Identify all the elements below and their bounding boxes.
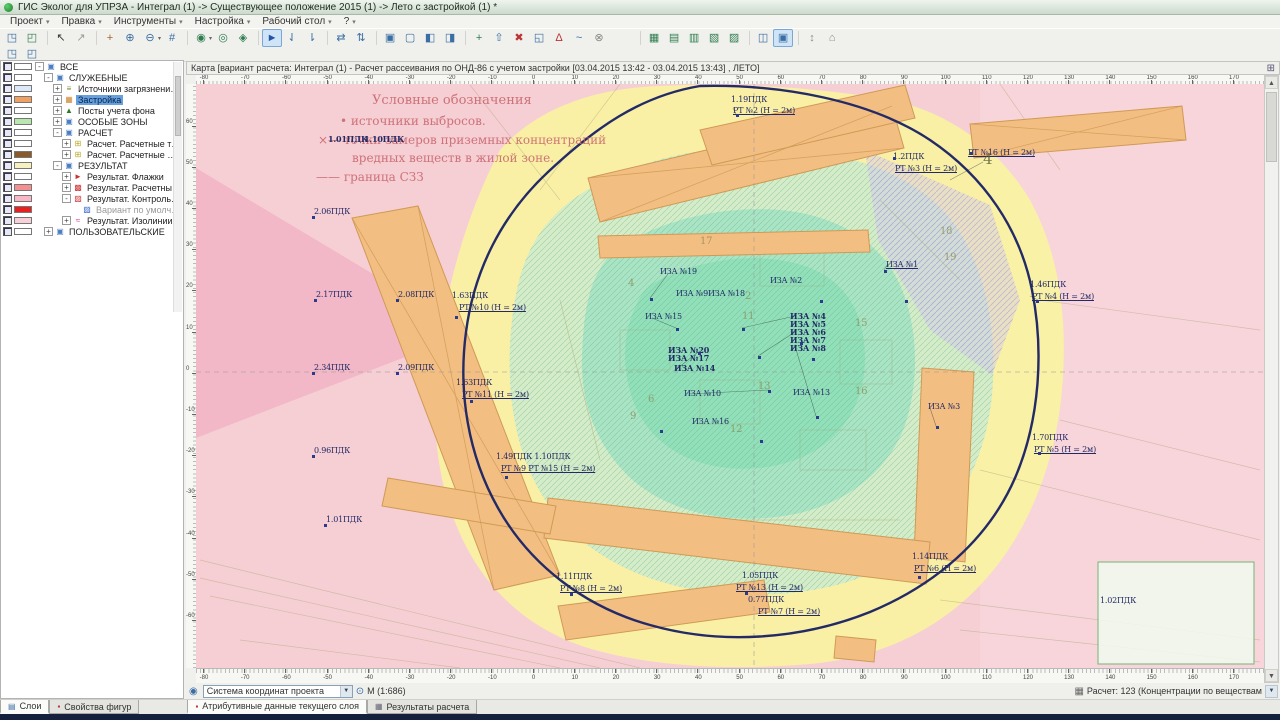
ruler-tick [1027,669,1028,673]
ruler-number: 140 [1103,675,1117,681]
toolbar-button-0-11-1[interactable]: ⌂ [822,29,842,47]
layer-visibility-icon[interactable] [3,117,12,126]
source-marker [455,316,458,319]
toolbar-separator [327,31,328,45]
menu-item-2[interactable]: Инструменты [108,16,189,27]
tab-calc-results-label: Результаты расчета [387,702,470,712]
expand-icon[interactable]: + [53,95,62,104]
toolbar-button-0-7-1[interactable]: ⇧ [489,29,509,47]
source-marker [660,430,663,433]
toolbar-button-0-1-0[interactable]: ↖ [51,29,71,47]
layer-visibility-icon[interactable] [3,205,12,214]
map-canvas[interactable]: Условные обозначения• источники выбросов… [196,84,1264,668]
ruler-tick [1151,669,1152,673]
toolbar-button-0-4-0[interactable]: ► [262,29,282,47]
pts-icon: ⊞ [73,139,83,149]
ruler-number: -50 [321,675,335,681]
source-marker [936,426,939,429]
res3-icon: ▨ [82,205,92,215]
tab-shape-properties-label: Свойства фигур [64,702,131,712]
ruler-number: 160 [1186,75,1200,81]
tree-row-label: ОСОБЫЕ ЗОНЫ [76,117,149,127]
layer-swatch [14,206,32,213]
layer-tree: -▣ВСЕ-▣СЛУЖЕБНЫЕ+≡Источники загрязнения … [1,61,183,237]
ruler-tick [574,669,575,673]
expand-icon[interactable]: + [62,216,71,225]
layers-scrollbar[interactable] [173,62,182,312]
layer-swatch [14,184,32,191]
zone-green-mid [582,209,915,519]
map-label: РТ №9 РТ №15 (Н = 2м) [501,465,595,473]
ruler-number: 50 [733,675,747,681]
tree-row-10[interactable]: +►Результат. Флажки [1,171,183,182]
collapse-icon[interactable]: - [44,73,53,82]
tree-row-label: Результат. Расчетные т... [85,183,183,193]
source-marker [812,358,815,361]
iso-icon: ≈ [73,216,83,226]
layer-visibility-icon[interactable] [3,106,12,115]
window-title: ГИС Эколог для УПРЗА - Интеграл (1) -> С… [18,2,497,13]
folder-icon: ▣ [64,161,74,171]
map-label: 1.49ПДК 1.10ПДК [496,453,571,461]
collapse-icon[interactable] [71,205,80,214]
expand-icon[interactable]: + [62,172,71,181]
toolbar-button-0-6-2[interactable]: ◧ [420,29,440,47]
map-label: ИЗА №2 [770,277,802,285]
tree-row-8[interactable]: +⊞Расчет. Расчетные площ... [1,149,183,160]
ruler-number: -80 [197,675,211,681]
collapse-icon[interactable]: - [53,128,62,137]
tree-row-6[interactable]: -▣РАСЧЕТ [1,127,183,138]
ruler-number: 130 [1062,675,1076,681]
ruler-tick [780,669,781,673]
layer-visibility-icon[interactable] [3,183,12,192]
ruler-tick [1233,669,1234,673]
layer-visibility-icon[interactable] [3,161,12,170]
ruler-number: -60 [279,675,293,681]
legend-line: —— граница СЗЗ [316,170,424,184]
pts-icon: ⊞ [73,150,83,160]
source-marker [820,300,823,303]
ruler-bottom: -80-70-60-50-40-30-20-100102030405060708… [196,668,1264,684]
ruler-number: 30 [650,675,664,681]
tab-shape-properties[interactable]: ▪ Свойства фигур [49,700,139,714]
toolbar-button-0-6-1[interactable]: ▢ [400,29,420,47]
source-marker [1036,300,1039,303]
map-label: РТ №6 (Н = 2м) [914,565,976,573]
toolbar-button-0-7-0[interactable]: + [469,29,489,47]
source-marker [905,300,908,303]
map-label: 1.01ПДК [326,516,362,524]
app-icon [4,3,13,12]
layers-scrollbar-thumb[interactable] [175,76,181,136]
map-label: 2.06ПДК [314,208,350,216]
ruler-number: 80 [856,675,870,681]
toolbar-dropdown-icon[interactable]: ▾ [158,35,161,42]
toolbar-button-0-7-5[interactable]: ~ [569,29,589,47]
map-label: 16 [855,388,867,396]
source-marker [970,152,973,155]
tree-row-label: Расчет. Расчетные точки [85,139,183,149]
toolbar-group-2: +⊕⊖▾# [100,29,182,47]
map-label: ИЗА №1 [886,261,918,269]
ruler-tick [1192,669,1193,673]
map-label: ИЗА №5 [790,320,826,328]
expand-icon[interactable]: + [53,84,62,93]
ruler-number: -60 [186,613,195,619]
expand-icon[interactable]: + [44,227,53,236]
layer-visibility-icon[interactable] [3,227,12,236]
layer-visibility-icon[interactable] [3,194,12,203]
coord-system-select[interactable]: Система координат проекта ▼ [203,685,353,698]
toolbar-button-0-11-0[interactable]: ↕ [802,29,822,47]
zone-lavender [865,150,1020,375]
toolbar-button-0-2-3[interactable]: # [162,29,182,47]
toolbar-button-0-3-2[interactable]: ◈ [233,29,253,47]
tree-row-9[interactable]: -▣РЕЗУЛЬТАТ [1,160,183,171]
map-label: ИЗА №17 [668,354,709,362]
layer-visibility-icon[interactable] [3,84,12,93]
map-label: 6 [648,396,654,404]
map-label: 1.19ПДК [731,96,767,104]
toolbar-button-0-7-6[interactable]: ⊗ [589,29,609,47]
ruler-number: 110 [980,75,994,81]
toolbar-button-0-5-1[interactable]: ⇅ [351,29,371,47]
tabs-spacer [139,700,187,714]
ruler-number: -10 [485,675,499,681]
legend-line: вредных веществ в жилой зоне. [352,151,554,165]
szz-boundary [463,86,1038,637]
source-marker [396,372,399,375]
map-label: ИЗА №13 [793,389,830,397]
toolbar-separator [258,31,259,45]
toolbar-button-0-2-0[interactable]: + [100,29,120,47]
collapse-icon[interactable]: - [62,194,71,203]
source-marker [816,416,819,419]
folder-icon: ▣ [55,227,65,237]
menu-item-1[interactable]: Правка [55,16,107,27]
toolbar-button-0-9-3[interactable]: ▧ [704,29,724,47]
toolbar-button-0-9-2[interactable]: ▥ [684,29,704,47]
toolbar-button-0-10-1[interactable]: ▣ [773,29,793,47]
expand-icon[interactable]: + [62,139,71,148]
tree-row-0[interactable]: -▣ВСЕ [1,61,183,72]
tree-row-label: Расчет. Расчетные площ... [85,150,183,160]
toolbar-main: ◳◰↖↗+⊕⊖▾#◉▾◎◈►⇃⇂⇄⇅▣▢◧◨+⇧✖◱Δ~⊗▦▤▥▧▨◫▣↕⌂ [0,28,1280,47]
ruler-number: 50 [733,75,747,81]
map-scale: М (1:686) [367,686,406,696]
toolbar-group-4: ►⇃⇂ [262,29,322,47]
collapse-icon[interactable]: - [53,161,62,170]
menu-item-5[interactable]: ? [338,16,362,27]
ruler-number: 60 [774,675,788,681]
toolbar-button-0-2-2[interactable]: ⊖ [140,29,160,47]
tab-calc-results[interactable]: ▦ Результаты расчета [367,700,477,714]
source-marker [312,216,315,219]
tree-row-4[interactable]: +▲Посты учета фона [1,105,183,116]
zone-pink-wedge [196,168,470,438]
tree-row-7[interactable]: +⊞Расчет. Расчетные точки [1,138,183,149]
source-marker [760,440,763,443]
tree-row-label: Застройка [76,95,123,105]
map-label: ИЗА №8 [790,344,826,352]
ruler-number: 10 [568,75,582,81]
ruler-number: 30 [186,242,193,248]
ruler-number: -20 [186,448,195,454]
ruler-tick [656,669,657,673]
map-label: 2.17ПДК [316,291,352,299]
ruler-number: 120 [1021,75,1035,81]
tree-row-1[interactable]: -▣СЛУЖЕБНЫЕ [1,72,183,83]
ruler-number: 170 [1227,75,1241,81]
legend-line: Условные обозначения [372,93,532,108]
toolbar-group-5: ⇄⇅ [331,29,371,47]
toolbar-button-0-2-1[interactable]: ⊕ [120,29,140,47]
tree-row-label: ПОЛЬЗОВАТЕЛЬСКИЕ [67,227,167,237]
result-selector[interactable]: ▦ Расчет: 123 (Концентрации по веществам… [1071,685,1278,698]
ruler-number: 20 [609,675,623,681]
flag-icon: ► [73,172,83,182]
toolbar-separator [465,31,466,45]
ruler-number: -30 [403,675,417,681]
ruler-number: 10 [568,675,582,681]
map-label: РТ №4 (Н = 2м) [1032,293,1094,301]
layer-swatch [14,63,32,70]
toolbar-dropdown-icon[interactable]: ▾ [209,35,212,42]
tree-row-14[interactable]: +≈Результат. Изолинии [1,215,183,226]
expand-icon[interactable]: + [62,150,71,159]
ruler-tick [862,669,863,673]
shape-icon: ▪ [57,702,60,711]
zone-base-pink [196,84,1264,668]
map-label: 1.70ПДК [1032,434,1068,442]
map-label: ИЗА №9ИЗА №18 [676,290,745,298]
ruler-number: 70 [815,675,829,681]
tab-attribute-data[interactable]: ▪ Атрибутивные данные текущего слоя [187,700,367,714]
layer-visibility-icon[interactable] [3,73,12,82]
toolbar-button-0-3-0[interactable]: ◉ [191,29,211,47]
toolbar-group-3: ◉▾◎◈ [191,29,253,47]
layer-swatch [14,85,32,92]
layer-swatch [14,173,32,180]
toolbar-button-0-1-1[interactable]: ↗ [71,29,91,47]
layer-visibility-icon[interactable] [3,150,12,159]
ruler-tick [1068,669,1069,673]
toolbar-button-0-5-0[interactable]: ⇄ [331,29,351,47]
toolbar-button-0-9-4[interactable]: ▨ [724,29,744,47]
tree-row-label: РЕЗУЛЬТАТ [76,161,129,171]
ruler-number: 60 [186,119,193,125]
ruler-number: -70 [238,675,252,681]
ruler-number: 40 [691,675,705,681]
ruler-tick [903,669,904,673]
tree-row-12[interactable]: -▨Результат. Контрольный... [1,193,183,204]
source-marker [505,476,508,479]
source-marker [1038,452,1041,455]
ruler-number: 100 [939,675,953,681]
layer-swatch [14,162,32,169]
map-label: 13 [758,383,770,391]
ruler-number: 40 [186,201,193,207]
toolbar-button-0-4-2[interactable]: ⇂ [302,29,322,47]
dashed-grid [196,84,1264,668]
source-marker [742,328,745,331]
tree-row-15[interactable]: +▣ПОЛЬЗОВАТЕЛЬСКИЕ [1,226,183,237]
map-label: 4 [628,280,634,288]
map-pin-icon[interactable]: ⊞ [1267,63,1275,74]
map-label: 1.63ПДК [456,379,492,387]
toolbar-group-11: ↕⌂ [802,29,842,47]
layer-visibility-icon[interactable] [3,172,12,181]
map-label: 2.34ПДК [314,364,350,372]
building-crosses [352,106,1186,590]
ruler-tick [945,669,946,673]
ruler-tick [409,669,410,673]
toolbar-button-0-6-3[interactable]: ◨ [440,29,460,47]
chevron-down-icon[interactable]: ▼ [1265,685,1278,698]
ruler-number: 0 [527,75,541,81]
toolbar-button-0-9-0[interactable]: ▦ [644,29,664,47]
source-marker [736,114,739,117]
map-label: 1.2ПДК [893,153,924,161]
collapse-icon[interactable]: - [35,62,44,71]
expand-icon[interactable]: + [62,183,71,192]
ruler-number: 140 [1103,75,1117,81]
toolbar-button-0-3-1[interactable]: ◎ [213,29,233,47]
map-label: ИЗА №6 [790,328,826,336]
ruler-number: -40 [362,675,376,681]
scrollbar-thumb[interactable] [1266,92,1277,162]
ruler-number: 0 [186,366,189,372]
ruler-tick [450,669,451,673]
map-label: 1.11ПДК [556,573,592,581]
map-world: Условные обозначения• источники выбросов… [196,84,1264,668]
ruler-number: 130 [1062,75,1076,81]
map-label: РТ №5 (Н = 2м) [1034,446,1096,454]
magnifier-icon: ⊙ [356,686,364,697]
results-icon: ▦ [375,702,383,711]
layer-visibility-icon[interactable] [3,62,12,71]
ruler-number: 170 [1227,675,1241,681]
ruler-number: -60 [279,75,293,81]
map-drawing [196,84,1264,668]
source-marker [745,592,748,595]
ruler-tick [203,669,204,673]
map-label: 11 [742,313,754,321]
coord-system-value: Система координат проекта [207,686,324,696]
toolbar-group-1: ↖↗ [51,29,91,47]
toolbar-button-0-9-1[interactable]: ▤ [664,29,684,47]
tree-row-3[interactable]: +▦Застройка [1,94,183,105]
map-label: ИЗА №10 [684,390,721,398]
scroll-down-icon[interactable]: ▼ [1265,669,1278,682]
res-icon: ▩ [73,183,83,193]
map-label: РТ №7 (Н = 2м) [758,608,820,616]
source-marker [650,298,653,301]
toolbar-button-0-4-1[interactable]: ⇃ [282,29,302,47]
tree-row-5[interactable]: +▣ОСОБЫЕ ЗОНЫ [1,116,183,127]
ruler-number: -10 [186,407,195,413]
res2-icon: ▨ [73,194,83,204]
ruler-number: -50 [321,75,335,81]
layer-swatch [14,118,32,125]
map-status-bar: ◉ Система координат проекта ▼ ⊙ М (1:686… [186,683,1280,699]
expand-icon[interactable]: + [53,117,62,126]
ruler-number: -20 [444,75,458,81]
ruler-number: 100 [939,75,953,81]
ruler-tick [327,669,328,673]
tree-row-13[interactable]: ▨Вариант по умолчанию [1,204,183,215]
ruler-number: 90 [897,675,911,681]
map-label: РТ №10 (Н = 2м) [459,304,526,312]
ruler-number: 120 [1021,675,1035,681]
chevron-down-icon[interactable]: ▼ [340,686,352,697]
ruler-number: -40 [362,75,376,81]
scroll-up-icon[interactable]: ▲ [1265,76,1278,89]
zone-yellow [435,85,1064,667]
post-icon: ▲ [64,106,74,116]
source-marker [396,299,399,302]
layer-swatch [14,96,32,103]
source-marker [800,342,803,345]
ruler-number: -20 [444,675,458,681]
layer-visibility-icon[interactable] [3,95,12,104]
tree-row-label: Посты учета фона [76,106,157,116]
layer-swatch [14,217,32,224]
map-label: ИЗА №3 [928,403,960,411]
layer-visibility-icon[interactable] [3,139,12,148]
tab-layers[interactable]: ▤ Слои [0,700,49,714]
source-marker [570,593,573,596]
ruler-tick [697,669,698,673]
tree-row-2[interactable]: +≡Источники загрязнения ат... [1,83,183,94]
tree-row-11[interactable]: +▩Результат. Расчетные т... [1,182,183,193]
toolbar-button-0-6-0[interactable]: ▣ [380,29,400,47]
layer-swatch [14,195,32,202]
ruler-tick [285,669,286,673]
layer-swatch [14,140,32,147]
menu-bar: ПроектПравкаИнструментыНастройкаРабочий … [0,15,1280,28]
toolbar-group-10: ◫▣ [753,29,793,47]
map-label: РТ №11 (Н = 2м) [462,391,529,399]
toolbar-button-0-10-0[interactable]: ◫ [753,29,773,47]
ruler-number: 110 [980,675,994,681]
map-vertical-scrollbar[interactable]: ▲ ▼ [1264,75,1279,683]
toolbar-separator [640,31,641,45]
toolbar-button-0-7-3[interactable]: ◱ [529,29,549,47]
layer-visibility-icon[interactable] [3,128,12,137]
menu-item-0[interactable]: Проект [4,16,55,27]
folder-icon: ▣ [64,128,74,138]
toolbar-group-9: ▦▤▥▧▨ [644,29,744,47]
toolbar-button-0-7-4[interactable]: Δ [549,29,569,47]
toolbar-button-0-7-2[interactable]: ✖ [509,29,529,47]
folder-icon: ▣ [46,62,56,72]
selection-rect [1098,562,1254,664]
menu-item-3[interactable]: Настройка [189,16,257,27]
ruler-tick [821,669,822,673]
expand-icon[interactable]: + [53,106,62,115]
map-label: 1.46ПДК [1030,281,1066,289]
tree-row-label: СЛУЖЕБНЫЕ [67,73,130,83]
ruler-number: 80 [856,75,870,81]
ruler-number: -10 [485,75,499,81]
ruler-number: -50 [186,572,195,578]
ruler-tick [739,669,740,673]
menu-item-4[interactable]: Рабочий стол [256,16,337,27]
map-label: 2.08ПДК [398,291,434,299]
layer-visibility-icon[interactable] [3,216,12,225]
